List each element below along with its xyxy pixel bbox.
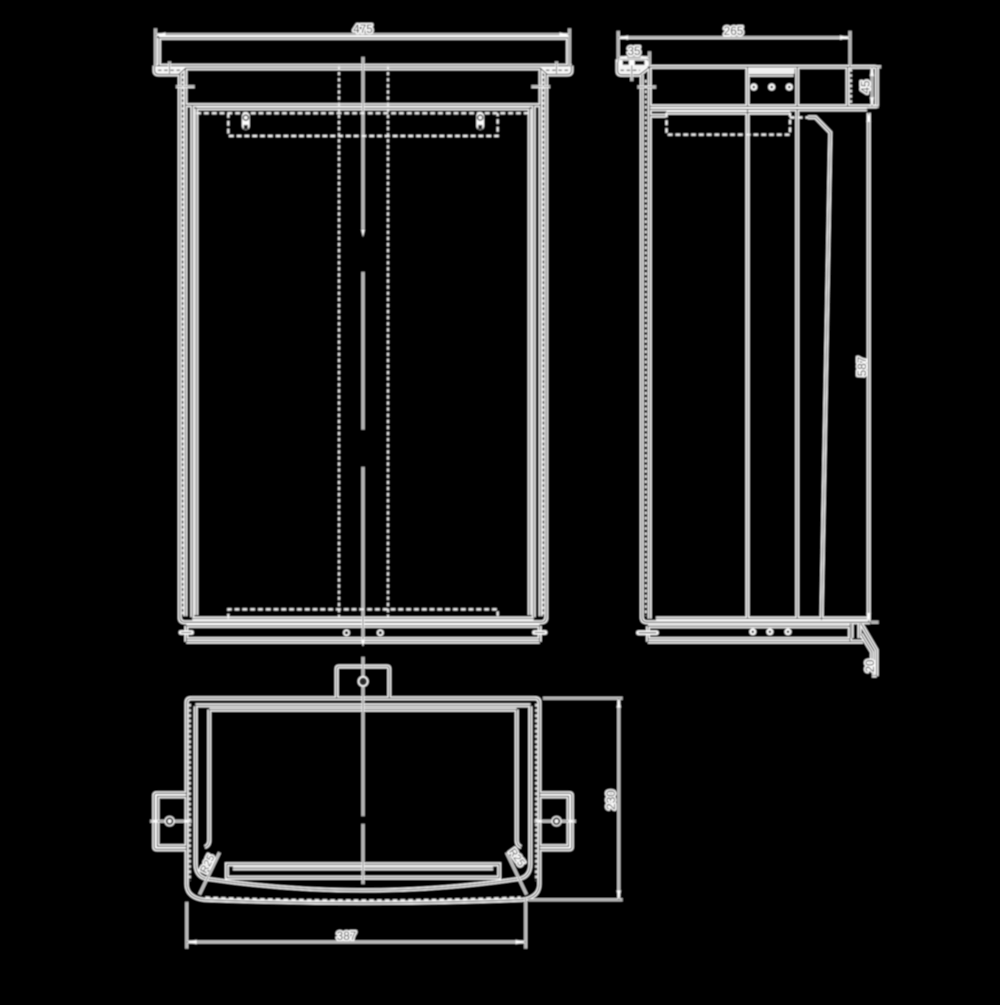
svg-text:35: 35 bbox=[627, 44, 641, 58]
svg-text:265: 265 bbox=[724, 24, 744, 38]
svg-text:20: 20 bbox=[865, 660, 877, 673]
svg-text:230: 230 bbox=[604, 790, 618, 810]
svg-text:587: 587 bbox=[855, 357, 869, 377]
svg-text:45: 45 bbox=[859, 80, 873, 94]
svg-text:475: 475 bbox=[353, 22, 373, 36]
svg-text:387: 387 bbox=[337, 929, 357, 943]
